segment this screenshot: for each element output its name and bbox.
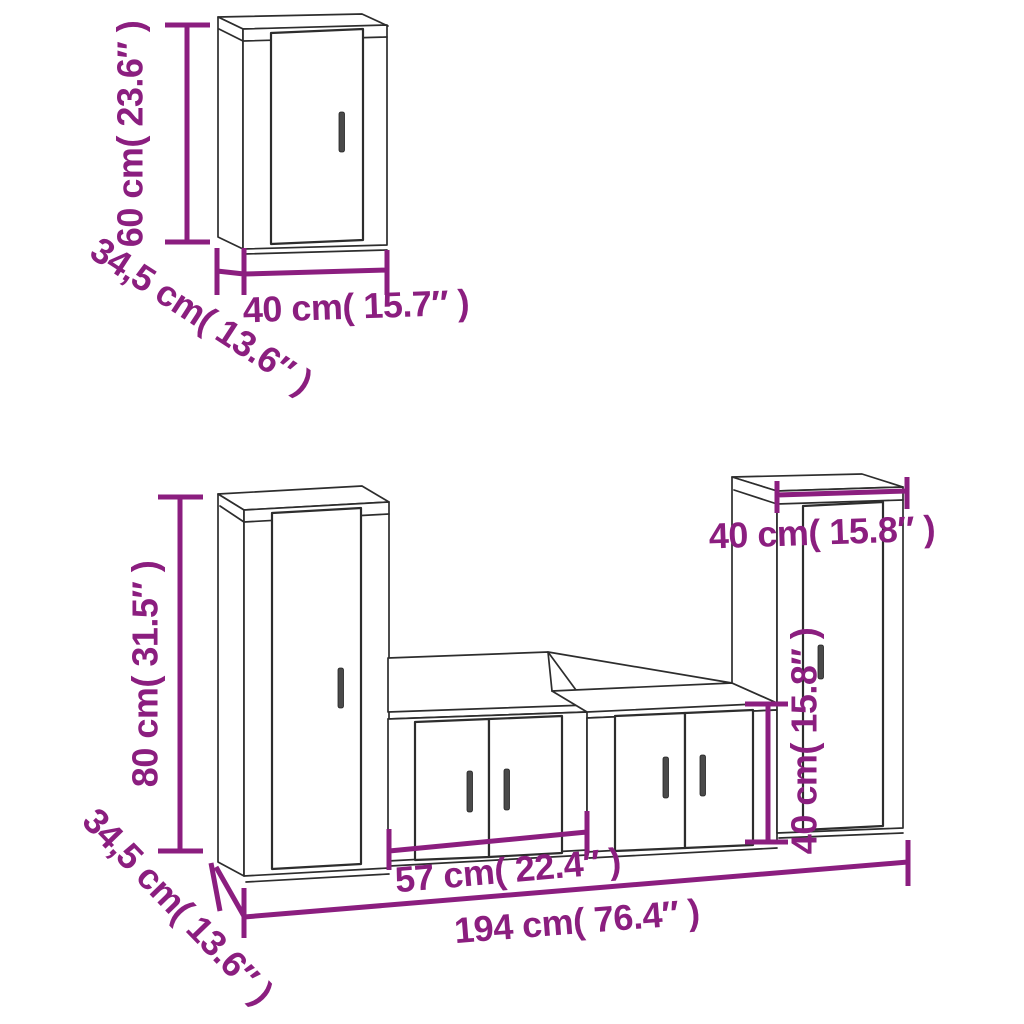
cabinet-door-left [615, 713, 685, 851]
cabinet-left-side-face [218, 494, 244, 876]
height-dimension-line [165, 25, 210, 242]
cabinet-door-right [685, 710, 753, 848]
cabinet-left-side-face [732, 477, 777, 703]
depth-dimension-line [217, 248, 244, 295]
door-handle [504, 769, 510, 810]
wall-cabinet-top-left [218, 14, 388, 254]
dimension-diagram: 60 cm( 23.6″ ) 34,5 cm( 13.6″ ) 40 cm( 1… [0, 0, 1024, 1024]
dim-label-top-width: 40 cm( 15.7″ ) [242, 282, 470, 331]
dim-label-left-height: 80 cm( 31.5″ ) [125, 561, 166, 787]
cabinet-door [271, 29, 363, 244]
door-handle [338, 668, 344, 708]
cabinet-door [272, 508, 361, 869]
dim-label-right-height: 40 cm( 15.8″ ) [784, 628, 825, 854]
door-handle [339, 112, 345, 152]
dim-label-right-width: 40 cm( 15.8″ ) [708, 508, 936, 557]
tall-cabinet-left [218, 486, 389, 882]
door-handle [700, 755, 706, 796]
cabinet-top-face [388, 652, 587, 712]
dim-label-top-height: 60 cm( 23.6″ ) [110, 21, 151, 247]
cabinet-door-left [415, 719, 489, 860]
door-handle [663, 757, 669, 798]
door-handle [467, 771, 473, 812]
dim-label-total-width: 194 cm( 76.4″ ) [453, 891, 701, 951]
bottom-slab-edge [244, 250, 387, 254]
cabinet-left-side-face [218, 17, 243, 249]
